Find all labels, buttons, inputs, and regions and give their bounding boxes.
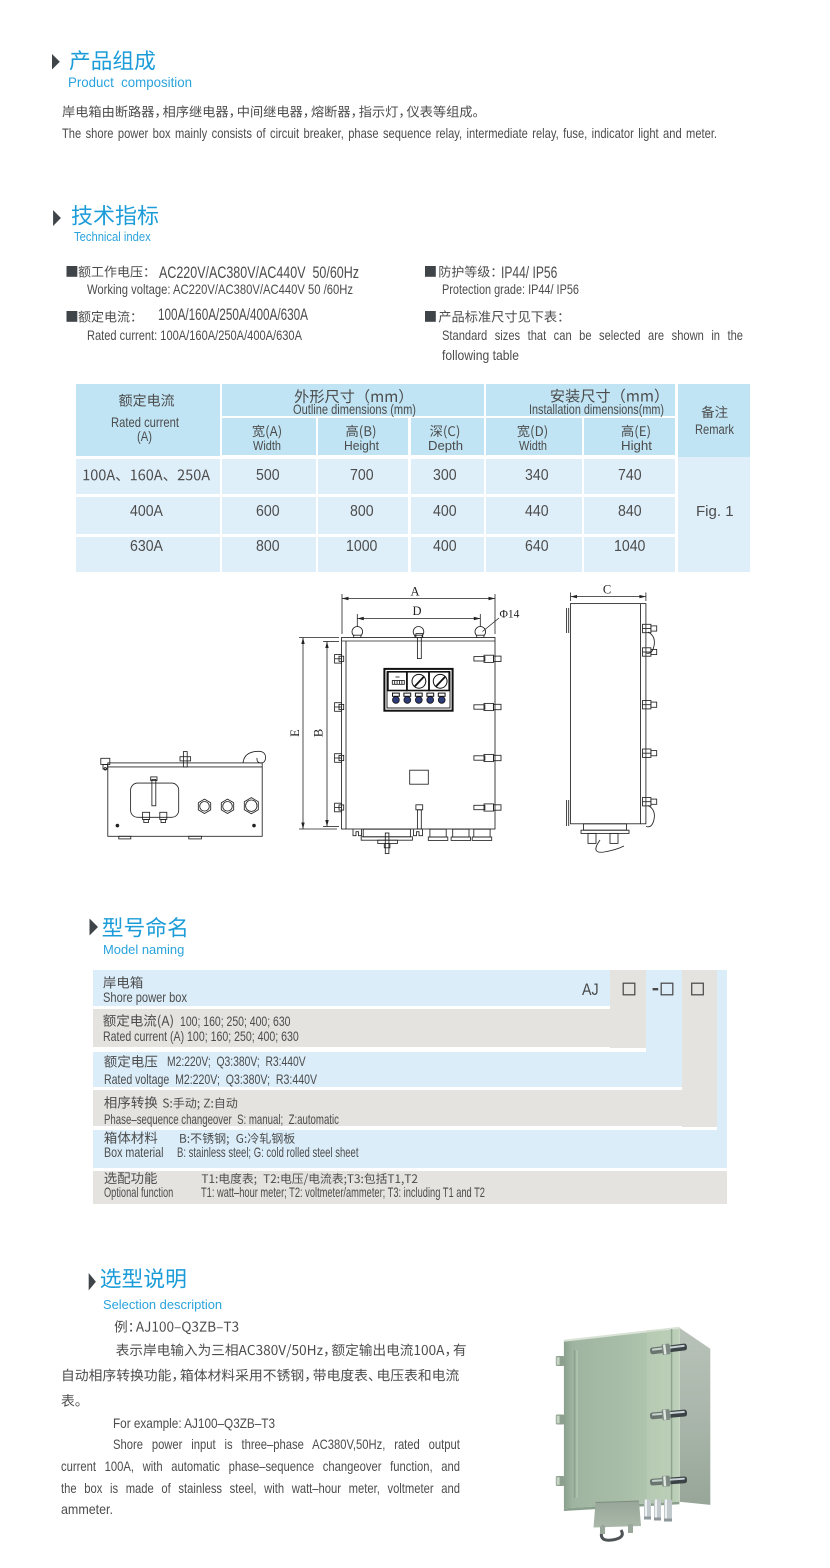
svg-text:C: C — [603, 583, 611, 597]
svg-text:E: E — [288, 729, 302, 737]
svg-text:Φ14: Φ14 — [500, 609, 520, 621]
svg-text:B: B — [312, 729, 326, 737]
svg-text:A: A — [410, 585, 419, 599]
svg-text:D: D — [412, 604, 421, 618]
